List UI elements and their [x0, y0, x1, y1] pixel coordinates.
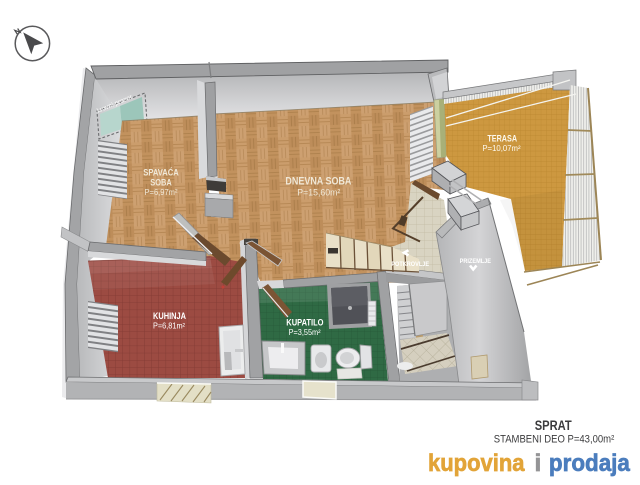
svg-text:P=10,07m²: P=10,07m² — [482, 143, 521, 153]
svg-text:P=3,55m²: P=3,55m² — [289, 327, 321, 337]
svg-text:STAMBENI DEO P=43,00m²: STAMBENI DEO P=43,00m² — [494, 434, 615, 446]
svg-text:SPRAT: SPRAT — [535, 418, 573, 433]
svg-text:DNEVNA SOBA: DNEVNA SOBA — [285, 175, 351, 187]
svg-text:kupovina: kupovina — [428, 450, 525, 477]
svg-text:prodaja: prodaja — [549, 450, 630, 477]
svg-text:PRIZEMLJE: PRIZEMLJE — [460, 258, 492, 265]
svg-text:P=6,81m²: P=6,81m² — [153, 321, 185, 331]
svg-text:P=6,97m²: P=6,97m² — [145, 187, 178, 197]
svg-text:SOBA: SOBA — [150, 177, 172, 187]
svg-text:POTKROVLJE: POTKROVLJE — [391, 261, 429, 268]
svg-text:i: i — [535, 450, 542, 477]
svg-text:SPAVAĆA: SPAVAĆA — [143, 167, 179, 178]
svg-text:P=15,60m²: P=15,60m² — [297, 188, 340, 198]
